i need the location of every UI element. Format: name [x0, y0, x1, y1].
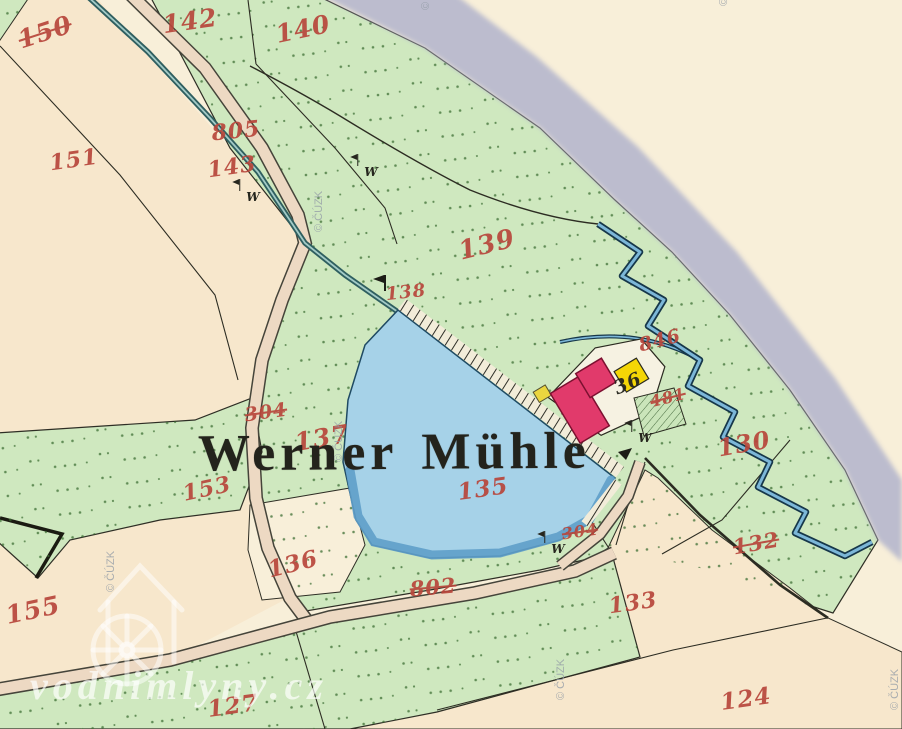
cadastral-map: 1501421401518051431391388463648113013215…	[0, 0, 902, 729]
map-terrain	[0, 0, 902, 729]
watermark-site-label: vodnimlyny.cz	[30, 662, 328, 709]
map-title: Werner Mühle	[198, 426, 591, 481]
